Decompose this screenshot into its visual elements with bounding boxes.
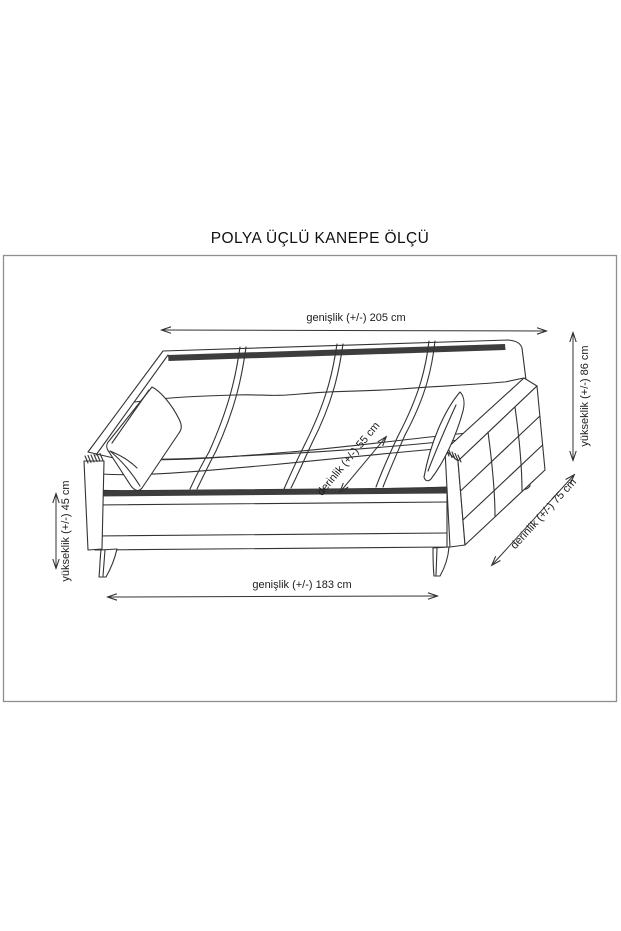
dimension-label-left-height: yükseklik (+/-) 45 cm — [60, 480, 72, 581]
sofa-drawing — [84, 340, 545, 577]
dimension-label-right-height: yükseklik (+/-) 86 cm — [579, 345, 591, 446]
dimension-bottom-width: genişlik (+/-) 183 cm — [108, 579, 437, 597]
dimension-left-height: yükseklik (+/-) 45 cm — [56, 480, 72, 581]
page-title: POLYA ÜÇLÜ KANEPE ÖLÇÜ — [211, 229, 429, 247]
dimension-label-top-width: genişlik (+/-) 205 cm — [306, 312, 405, 324]
sofa-front-legs — [99, 547, 449, 577]
dimension-top-width: genişlik (+/-) 205 cm — [162, 312, 546, 331]
dimension-right-height: yükseklik (+/-) 86 cm — [573, 333, 591, 460]
sofa-base-rail — [93, 488, 447, 550]
sofa-left-armrest — [84, 454, 104, 551]
dimension-label-bottom-width: genişlik (+/-) 183 cm — [252, 579, 351, 591]
dimension-sheet: POLYA ÜÇLÜ KANEPE ÖLÇÜ — [0, 0, 621, 931]
